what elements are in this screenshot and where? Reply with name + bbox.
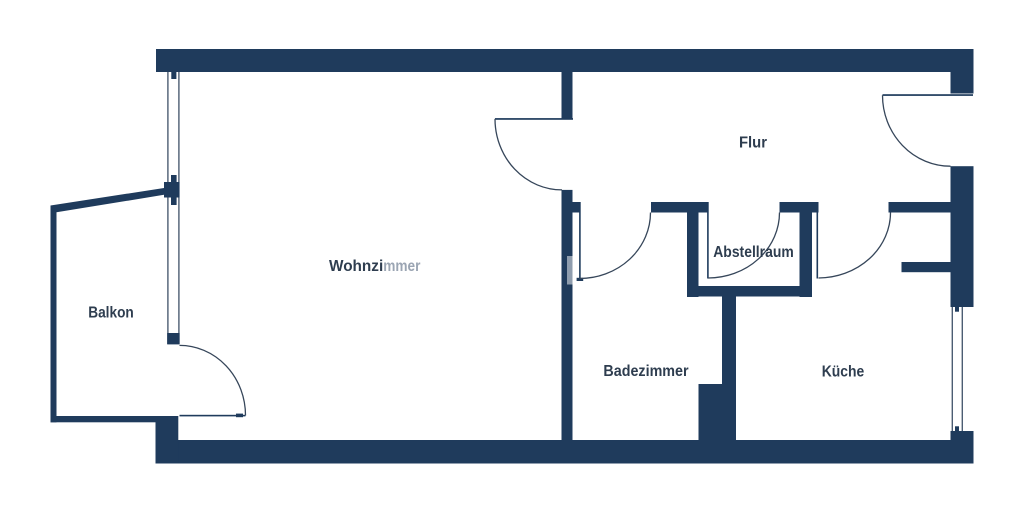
svg-text:Badezimmer: Badezimmer [603,363,688,380]
svg-text:Abstellraum: Abstellraum [713,244,794,261]
svg-text:Balkon: Balkon [88,305,134,322]
svg-text:Küche: Küche [822,364,865,381]
svg-text:Flur: Flur [739,135,767,152]
svg-text:Wohnzimmer: Wohnzimmer [329,258,420,275]
